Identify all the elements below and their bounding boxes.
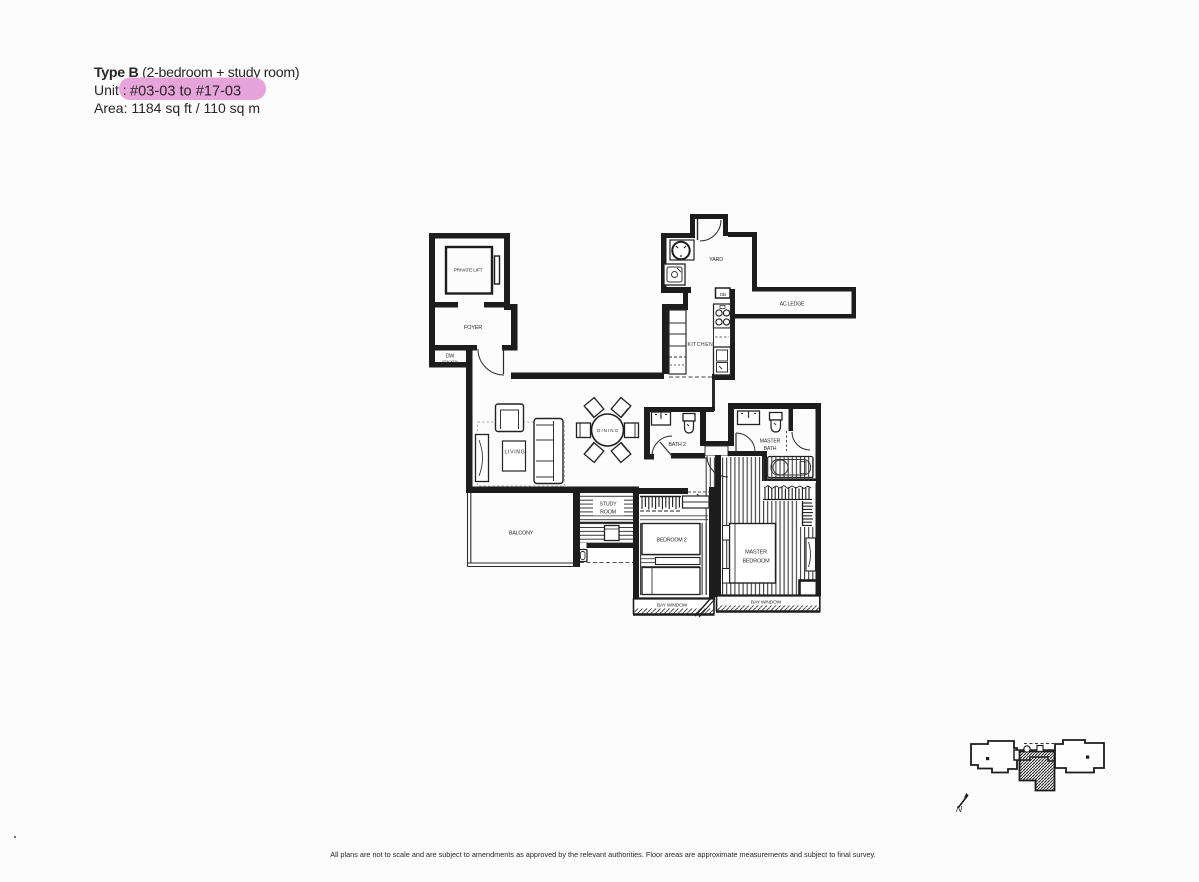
svg-text:MASTER: MASTER — [760, 439, 781, 445]
svg-text:DB: DB — [720, 292, 726, 297]
svg-text:BAY WINDOW: BAY WINDOW — [657, 603, 688, 609]
svg-text:BEDROOM: BEDROOM — [742, 559, 770, 565]
svg-text:BALCONY: BALCONY — [509, 531, 534, 537]
svg-text:N: N — [956, 804, 963, 814]
svg-text:ROOM: ROOM — [600, 510, 616, 516]
svg-text:AC LEDGE: AC LEDGE — [780, 302, 805, 308]
svg-text:MASTER: MASTER — [745, 550, 767, 556]
svg-text:#03-03 to #17-03: #03-03 to #17-03 — [130, 84, 241, 100]
svg-text:STUDY: STUDY — [600, 502, 618, 508]
svg-text:All plans are not to scale and: All plans are not to scale and are subje… — [330, 850, 875, 859]
svg-text:BEDROOM 2: BEDROOM 2 — [657, 538, 687, 544]
svg-text:FOYER: FOYER — [464, 325, 482, 331]
svg-text:BAY WINDOW: BAY WINDOW — [751, 600, 782, 606]
svg-text:PRIVATE LIFT: PRIVATE LIFT — [454, 268, 483, 274]
svg-text:BATH 2: BATH 2 — [668, 442, 685, 448]
svg-text:Unit :: Unit : — [94, 82, 127, 98]
svg-text:YARD: YARD — [709, 257, 723, 263]
svg-text:(STACKED): (STACKED) — [442, 360, 458, 364]
svg-text:Area: 1184 sq ft / 110 sq m: Area: 1184 sq ft / 110 sq m — [94, 100, 260, 116]
svg-text:LIVING: LIVING — [505, 450, 525, 456]
svg-text:KITCHEN: KITCHEN — [688, 342, 714, 348]
